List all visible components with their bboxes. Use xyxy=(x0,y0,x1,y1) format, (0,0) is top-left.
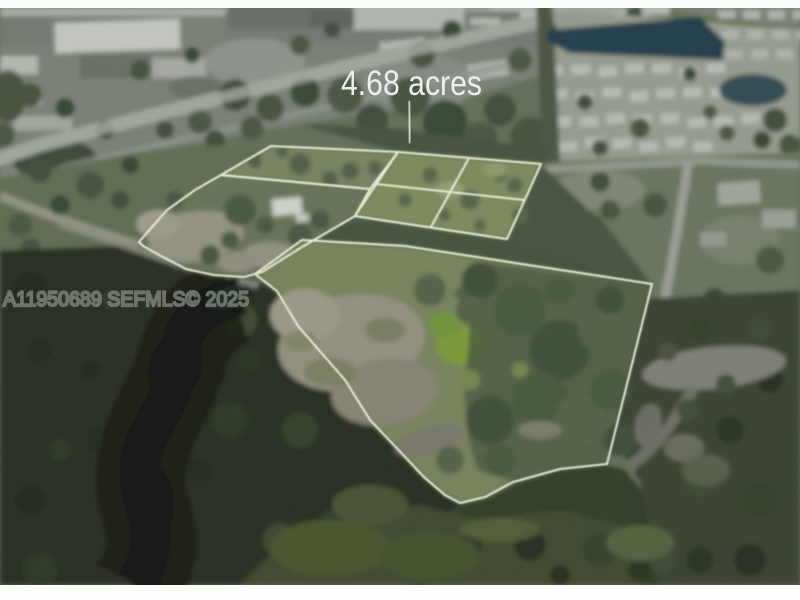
svg-text:4.68 acres: 4.68 acres xyxy=(341,63,482,103)
svg-text:A11950689 SEFMLS© 2025: A11950689 SEFMLS© 2025 xyxy=(3,287,249,311)
